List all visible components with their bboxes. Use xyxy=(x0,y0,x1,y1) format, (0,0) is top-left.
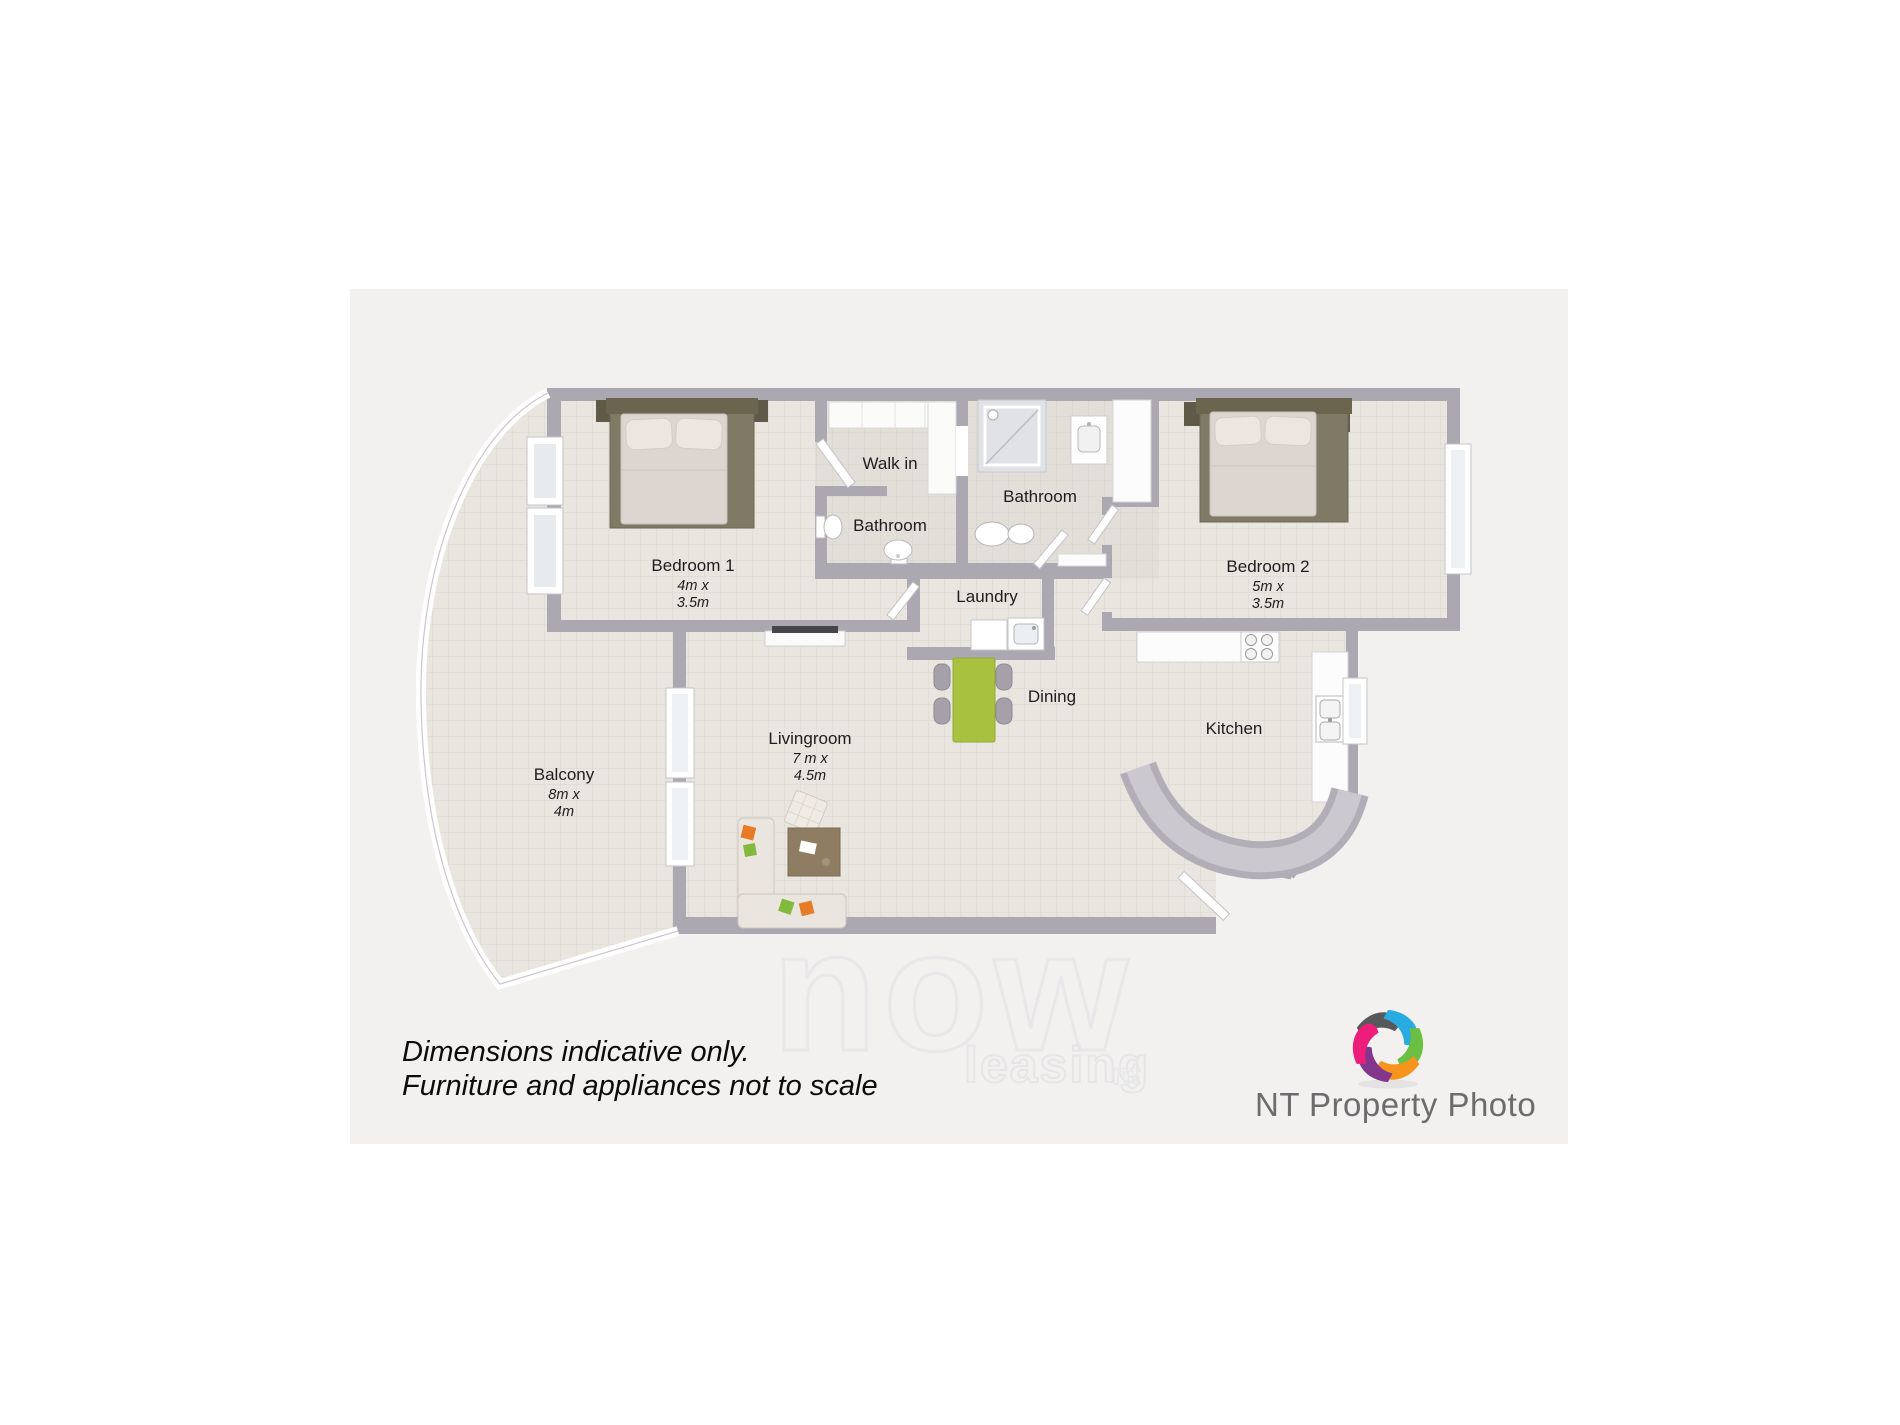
hall-counter xyxy=(1058,554,1106,566)
toilet-icon-2 xyxy=(975,522,1034,546)
room-label-walkin: Walk in xyxy=(862,454,917,474)
room-label-bathroom2: Bathroom xyxy=(1003,487,1077,507)
disclaimer-line1: Dimensions indicative only. xyxy=(402,1036,878,1070)
washing-machine-icon xyxy=(971,620,1007,650)
laundry-trough-icon xyxy=(1008,618,1044,650)
room-label-laundry: Laundry xyxy=(956,587,1017,607)
window-icon-kitchen xyxy=(1343,678,1367,744)
bed-icon-bedroom1 xyxy=(596,398,768,528)
room-name: Balcony xyxy=(534,765,594,785)
window-icon-bedroom2 xyxy=(1445,444,1471,574)
room-label-bedroom2: Bedroom 2 5m x 3.5m xyxy=(1226,557,1309,613)
coffee-table-icon xyxy=(788,828,840,876)
window-icon-bedroom1-a xyxy=(527,437,563,505)
shower-icon xyxy=(978,400,1046,472)
nt-property-photo-logo-text: NT Property Photo xyxy=(1255,1086,1536,1124)
room-name: Bedroom 1 xyxy=(651,556,734,576)
tv-unit-icon xyxy=(765,626,845,646)
sliding-door-icon-living-a xyxy=(666,688,694,778)
room-name: Dining xyxy=(1028,687,1076,707)
room-label-dining: Dining xyxy=(1028,687,1076,707)
room-name: Laundry xyxy=(956,587,1017,607)
room-name: Bathroom xyxy=(1003,487,1077,507)
sliding-door-icon-living-b xyxy=(666,782,694,866)
room-label-bathroom1: Bathroom xyxy=(853,516,927,536)
floor-plan-page: Bedroom 1 4m x 3.5m Walk in Bathroom Bat… xyxy=(0,0,1900,1425)
room-dimensions: 4m x 3.5m xyxy=(651,577,734,612)
disclaimer-line2: Furniture and appliances not to scale xyxy=(402,1070,878,1104)
vanity-sink-icon xyxy=(1071,416,1107,464)
room-label-bedroom1: Bedroom 1 4m x 3.5m xyxy=(651,556,734,612)
nt-property-photo-logo-icon xyxy=(1346,1004,1430,1090)
room-label-balcony: Balcony 8m x 4m xyxy=(534,765,594,821)
room-name: Bathroom xyxy=(853,516,927,536)
room-label-livingroom: Livingroom 7 m x 4.5m xyxy=(768,729,851,785)
disclaimer-text: Dimensions indicative only. Furniture an… xyxy=(402,1036,878,1103)
room-name: Walk in xyxy=(862,454,917,474)
stove-icon xyxy=(1241,632,1279,662)
window-icon-bedroom1-b xyxy=(527,508,563,594)
bathroom-door-opening xyxy=(956,426,968,476)
room-dimensions: 8m x 4m xyxy=(534,786,594,821)
room-label-kitchen: Kitchen xyxy=(1206,719,1263,739)
room-dimensions: 7 m x 4.5m xyxy=(768,750,851,785)
logo-pinwheel xyxy=(1346,1004,1430,1090)
bed-icon-bedroom2 xyxy=(1184,398,1352,522)
room-dimensions: 5m x 3.5m xyxy=(1226,578,1309,613)
room-name: Bedroom 2 xyxy=(1226,557,1309,577)
toilet-icon xyxy=(816,515,842,539)
tall-cabinet-icon xyxy=(1113,400,1151,502)
room-name: Kitchen xyxy=(1206,719,1263,739)
kitchen-sink-icon xyxy=(1316,696,1344,742)
room-name: Livingroom xyxy=(768,729,851,749)
